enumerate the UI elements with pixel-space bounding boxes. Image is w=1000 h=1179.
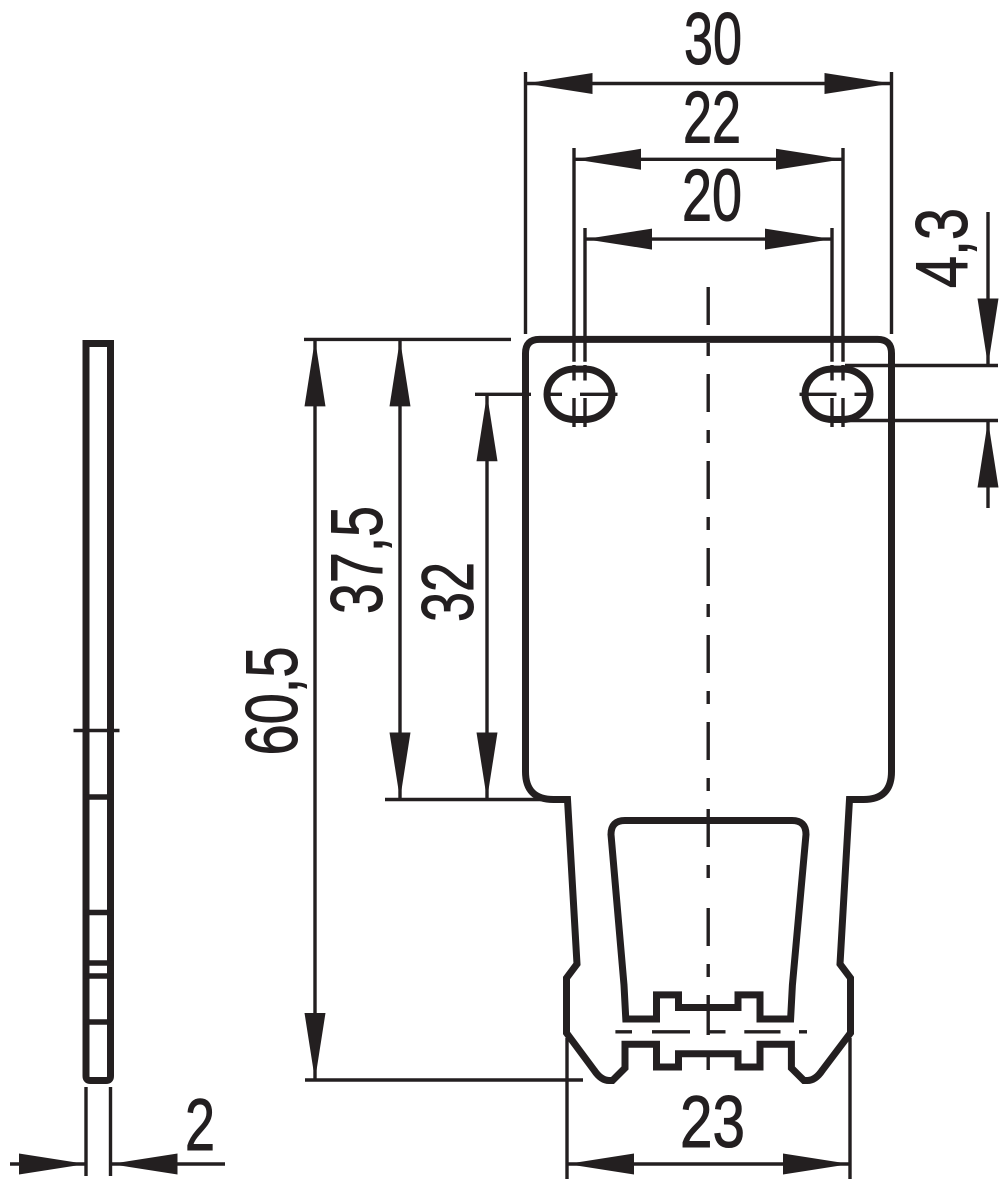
svg-text:60,5: 60,5 [232,647,313,756]
svg-text:37,5: 37,5 [317,506,398,614]
svg-text:20: 20 [682,156,742,237]
svg-text:23: 23 [680,1082,745,1163]
svg-text:30: 30 [684,0,742,80]
svg-text:2: 2 [185,1085,215,1166]
svg-text:4,3: 4,3 [902,208,983,288]
svg-text:22: 22 [683,78,741,159]
svg-text:32: 32 [408,562,489,622]
